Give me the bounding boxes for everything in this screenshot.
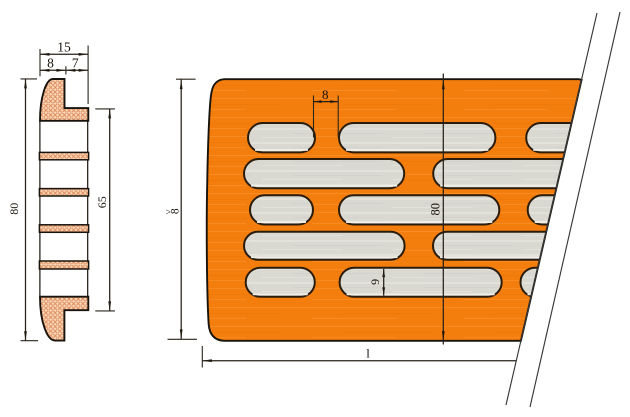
- svg-text:8: 8: [170, 208, 182, 214]
- svg-text:15: 15: [57, 39, 71, 54]
- svg-text:8: 8: [47, 56, 54, 71]
- svg-text:80: 80: [428, 203, 442, 216]
- svg-text:7: 7: [72, 56, 79, 71]
- svg-text:65: 65: [95, 196, 109, 208]
- svg-text:9: 9: [368, 279, 382, 285]
- svg-text:8: 8: [322, 87, 329, 102]
- svg-text:80: 80: [7, 203, 21, 215]
- svg-text:l: l: [366, 346, 370, 361]
